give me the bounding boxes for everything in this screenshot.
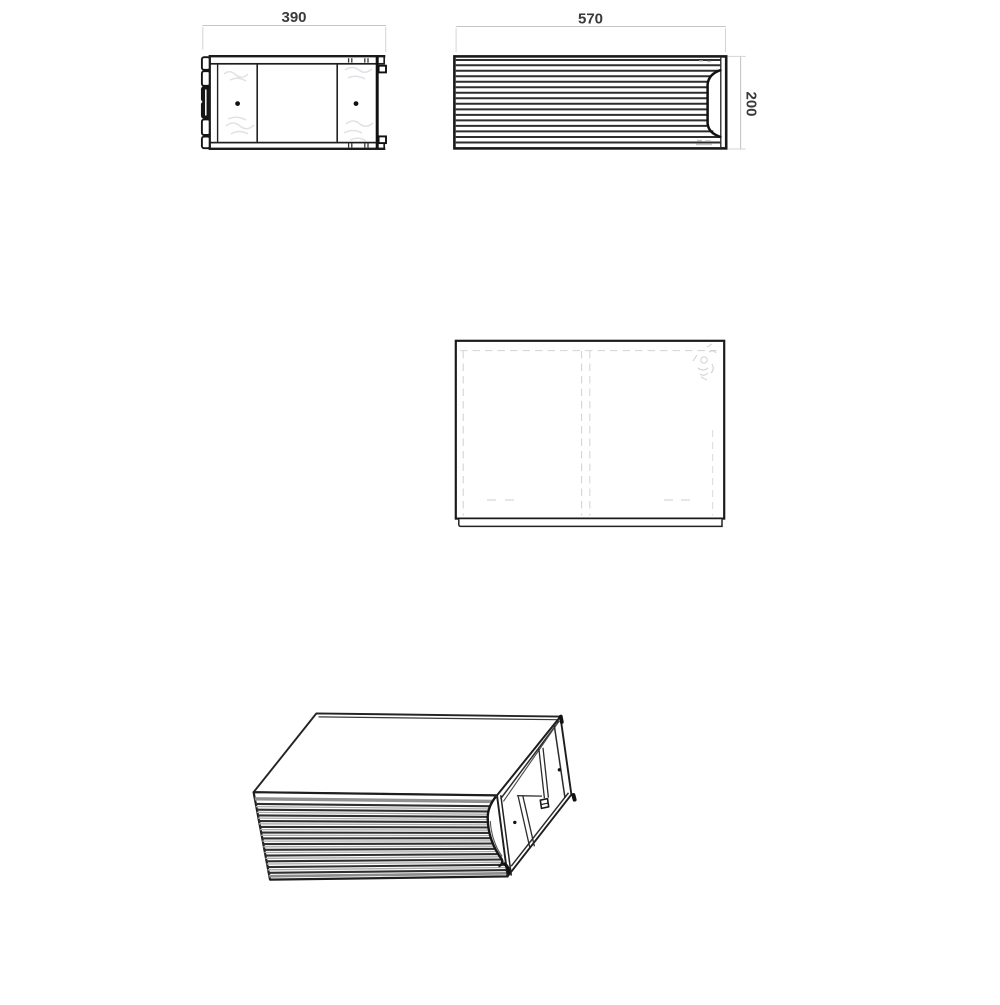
svg-text:200: 200: [743, 91, 760, 116]
svg-text:570: 570: [578, 11, 603, 28]
svg-text:390: 390: [281, 9, 306, 26]
